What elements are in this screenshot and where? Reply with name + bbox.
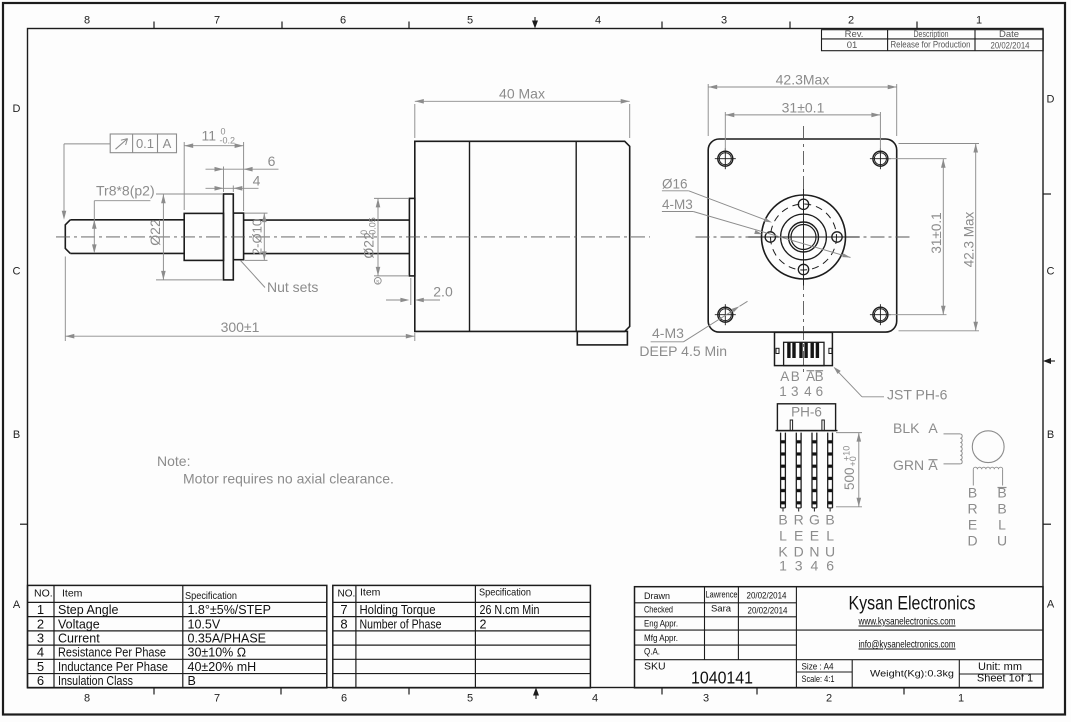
svg-text:7: 7 [214,693,220,705]
svg-text:-0.05: -0.05 [367,217,377,238]
svg-text:R: R [967,501,977,517]
svg-text:Size : A4: Size : A4 [802,662,834,673]
svg-text:1: 1 [976,15,982,27]
svg-text:Ø16: Ø16 [662,176,688,191]
svg-text:500: 500 [842,467,857,490]
svg-text:B: B [778,512,787,528]
svg-text:Release for Production: Release for Production [891,39,971,50]
svg-text:4: 4 [37,645,44,660]
svg-text:Insulation Class: Insulation Class [58,674,133,688]
svg-text:E: E [794,528,803,544]
svg-text:GRN: GRN [893,457,924,473]
svg-text:0.1: 0.1 [136,136,154,151]
svg-text:5: 5 [467,693,473,705]
svg-text:6: 6 [340,15,346,27]
svg-text:B: B [791,369,800,384]
svg-text:D: D [1047,94,1055,106]
svg-text:Holding Torque: Holding Torque [360,603,436,617]
svg-text:2-Ø10: 2-Ø10 [250,219,265,255]
svg-text:8: 8 [340,616,347,631]
svg-text:Mfg Appr.: Mfg Appr. [644,633,678,644]
svg-text:6: 6 [268,153,276,169]
svg-text:DEEP 4.5 Min: DEEP 4.5 Min [639,343,727,359]
svg-text:1: 1 [958,693,964,705]
svg-text:JST PH-6: JST PH-6 [887,387,948,403]
svg-text:3: 3 [37,630,44,645]
svg-text:2: 2 [37,616,44,631]
svg-text:5: 5 [37,659,44,674]
svg-text:Inductance Per Phase: Inductance Per Phase [58,660,168,674]
svg-text:Note:: Note: [157,453,190,469]
svg-text:L: L [779,528,787,544]
svg-text:Current: Current [58,631,100,645]
svg-text:6: 6 [37,673,44,688]
svg-text:Motor requires no axial cleara: Motor requires no axial clearance. [183,471,394,487]
svg-text:B: B [188,674,196,688]
svg-text:BLK: BLK [893,420,920,436]
svg-text:Eng Appr.: Eng Appr. [644,619,678,630]
svg-text:1: 1 [779,384,787,399]
svg-text:31±0.1: 31±0.1 [929,212,944,253]
svg-text:01: 01 [847,40,858,51]
svg-text:4-M3: 4-M3 [662,197,693,212]
svg-text:Date: Date [999,29,1019,40]
svg-text:Ø22: Ø22 [147,219,163,246]
svg-text:E: E [810,528,819,544]
svg-text:Sara: Sara [711,604,732,615]
svg-text:info@kysanelectronics.com: info@kysanelectronics.com [859,640,956,651]
svg-text:Item: Item [62,588,83,600]
svg-text:E: E [968,517,977,533]
svg-text:7: 7 [340,602,347,617]
svg-text:B: B [1047,429,1054,441]
svg-text:Lawrence: Lawrence [706,590,738,601]
svg-text:Kysan Electronics: Kysan Electronics [849,594,976,615]
svg-text:Specification: Specification [479,587,531,599]
svg-text:A: A [13,599,21,611]
svg-text:1: 1 [779,558,787,574]
svg-text:Unit: mm: Unit: mm [978,661,1022,673]
svg-text:4: 4 [595,15,601,27]
svg-text:2: 2 [480,617,487,631]
svg-text:Step Angle: Step Angle [58,603,119,617]
svg-text:1.8°±5%/STEP: 1.8°±5%/STEP [188,603,271,617]
svg-text:Drawn: Drawn [644,591,670,602]
svg-text:B: B [997,501,1006,517]
svg-text:B: B [968,485,977,501]
svg-text:1: 1 [37,602,44,617]
svg-text:C: C [13,266,21,278]
svg-text:D: D [967,533,977,549]
svg-text:Nut sets: Nut sets [267,279,318,295]
svg-text:20/02/2014: 20/02/2014 [991,40,1030,51]
svg-text:Sheet 1of 1: Sheet 1of 1 [977,673,1033,685]
svg-text:Number of Phase: Number of Phase [360,617,442,631]
svg-text:26 N.cm Min: 26 N.cm Min [480,603,540,617]
svg-text:Resistance Per Phase: Resistance Per Phase [58,646,166,660]
svg-text:Tr8*8(p2): Tr8*8(p2) [96,183,155,199]
svg-text:www.kysanelectronics.com: www.kysanelectronics.com [858,617,956,628]
svg-text:Weight(Kg):0.3kg: Weight(Kg):0.3kg [870,669,954,680]
svg-text:NO.: NO. [338,589,356,600]
svg-text:3: 3 [703,693,709,705]
svg-text:42.3Max: 42.3Max [776,72,830,88]
svg-text:2: 2 [826,693,832,705]
svg-text:4: 4 [804,384,812,399]
svg-text:3: 3 [721,15,727,27]
svg-text:3: 3 [795,558,803,574]
svg-text:SKU: SKU [644,661,666,673]
svg-text:D: D [13,103,21,115]
svg-text:7: 7 [214,15,220,27]
svg-text:2: 2 [848,15,854,27]
svg-text:0.35A/PHASE: 0.35A/PHASE [188,631,267,645]
svg-text:Rev.: Rev. [845,29,864,40]
svg-text:4: 4 [253,173,261,189]
svg-text:Q.A.: Q.A. [644,647,660,658]
svg-text:Item: Item [360,587,381,599]
svg-text:Voltage: Voltage [58,617,100,631]
svg-text:8: 8 [84,15,90,27]
svg-text:NO.: NO. [34,588,53,600]
svg-text:42.3 Max: 42.3 Max [962,211,977,267]
svg-text:8: 8 [84,693,90,705]
svg-text:Specification: Specification [185,590,237,602]
svg-text:PH-6: PH-6 [791,405,822,420]
svg-text:B: B [13,429,20,441]
svg-text:4: 4 [592,693,598,705]
svg-text:40±20% mH: 40±20% mH [188,660,257,674]
svg-text:L: L [998,517,1006,533]
svg-text:3: 3 [791,384,799,399]
svg-text:300±1: 300±1 [221,319,260,335]
svg-text:C: C [1047,266,1055,278]
svg-text:6: 6 [826,558,834,574]
svg-text:11: 11 [202,128,217,144]
svg-text:31±0.1: 31±0.1 [782,99,825,115]
svg-text:20/02/2014: 20/02/2014 [748,606,788,617]
svg-text:5: 5 [467,15,473,27]
svg-text:1040141: 1040141 [691,668,753,688]
svg-text:G: G [809,512,820,528]
svg-text:A: A [780,369,789,384]
svg-text:-0.2: -0.2 [220,136,236,146]
svg-text:A: A [1047,599,1055,611]
svg-text:2.0: 2.0 [433,284,453,300]
svg-text:Scale: 4:1: Scale: 4:1 [802,674,835,685]
svg-text:Checked: Checked [644,605,673,616]
svg-text:A: A [928,420,938,436]
svg-text:+0: +0 [848,456,858,466]
svg-text:10.5V: 10.5V [188,617,221,631]
svg-text:R: R [794,512,804,528]
svg-text:B: B [825,512,834,528]
svg-text:40 Max: 40 Max [499,85,545,101]
svg-text:30±10% Ω: 30±10% Ω [188,646,247,660]
svg-text:4-M3: 4-M3 [652,325,684,341]
svg-text:U: U [997,533,1007,549]
svg-text:6: 6 [341,693,347,705]
svg-text:6: 6 [816,384,824,399]
svg-text:L: L [826,528,834,544]
svg-text:A: A [163,136,172,151]
svg-text:20/02/2014: 20/02/2014 [747,591,787,602]
svg-text:4: 4 [811,558,819,574]
